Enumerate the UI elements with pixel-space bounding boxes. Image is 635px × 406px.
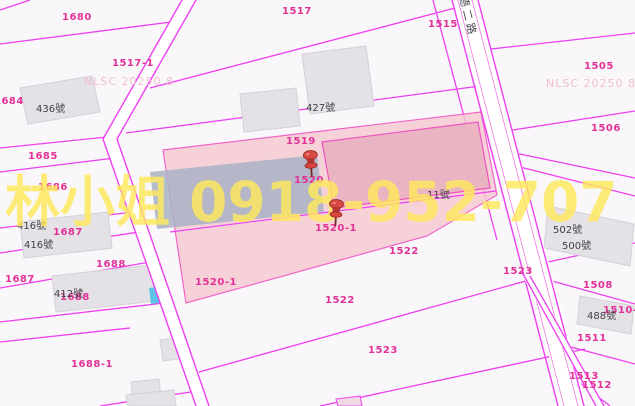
small-building-footprint: [336, 396, 362, 406]
cadastral-map-viewport[interactable]: 德二路 168015171517-11684168516861687168816…: [0, 0, 635, 406]
map-pin-icon[interactable]: [300, 149, 322, 180]
map-pin-icon[interactable]: [325, 198, 347, 229]
